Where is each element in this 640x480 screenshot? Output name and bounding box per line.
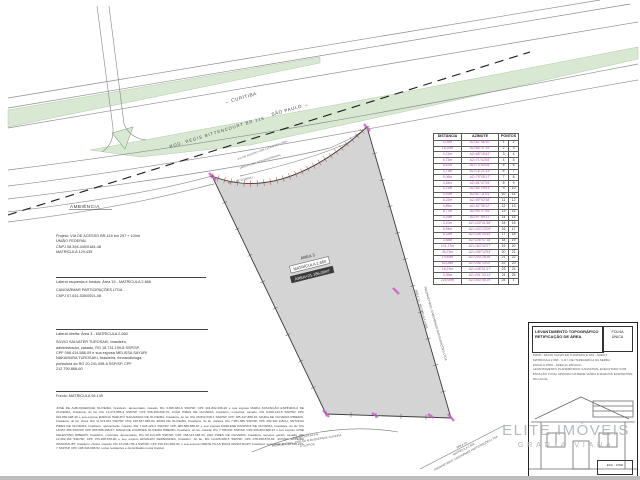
back-title: Fundo: MATRÍCULA 94.149 <box>56 394 208 399</box>
house-roof <box>535 397 629 419</box>
curitiba-label: ← CURITIBA <box>224 91 258 105</box>
divider-line <box>56 391 208 392</box>
watermark-name: ELITE IMÓVEIS <box>492 422 640 439</box>
watermark-location: GRANJA VIANA <box>492 440 640 449</box>
owners-paragraph: JOSÉ DE ALBUQUERQUE OLIVEIRA, brasileiro… <box>56 406 304 451</box>
divider-line <box>56 277 206 278</box>
back-boundary-note: Fundo: MATRÍCULA 94.149 <box>56 391 208 399</box>
survey-cell: 228,69m <box>434 278 462 284</box>
title-block: LEVANTAMENTO TOPOGRÁFICO RETIFICAÇÃO DE … <box>528 322 638 479</box>
br-label-3: PROPRIETÁRIO: CANOARMAR PARTICIPAÇÕES LT… <box>433 434 499 472</box>
text-line: LEVANTAMENTO PLANIMÉTRICO CADASTRAL EXEC… <box>533 367 633 381</box>
survey-sheet: ← CURITIBA SÃO PAULO → ROD. RÉGIS BITTEN… <box>0 0 640 480</box>
ambiencia-label: AMBIÊNCIA <box>70 202 100 209</box>
divider-line <box>56 329 208 330</box>
scale-box: ESC.: 1/500 <box>597 460 633 475</box>
sheet-number-box: FOLHA ÚNICA <box>602 326 633 352</box>
survey-row: 228,69mAZ=343°55'29"251 <box>434 278 519 284</box>
left-side-note: Lateral esquerda e fundos: Área 19 - MAT… <box>56 277 206 299</box>
right-side-lines: SILVIO SALVATER TUROSAKI, brasileiro,adm… <box>56 340 208 372</box>
title-block-heading: LEVANTAMENTO TOPOGRÁFICO RETIFICAÇÃO DE … <box>532 326 604 353</box>
text-line: 212.790.868-60 <box>56 367 208 372</box>
bottom-right-neighbour-labels: ÁREA 19 MATRÍCULA 2.666 PROPRIETÁRIO: CA… <box>429 426 499 471</box>
col-distancia: DISTÂNCIA <box>434 134 462 141</box>
left-side-lines: CANOARMAR PARTICIPAÇÕES LTDACNPJ 07.631.… <box>56 288 206 299</box>
agency-watermark: ELITE IMÓVEIS GRANJA VIANA <box>492 422 640 449</box>
col-pontos: PONTOS <box>499 134 519 141</box>
survey-cell: 1 <box>509 278 519 284</box>
col-azimute: AZIMUTE <box>462 134 499 141</box>
spec-box <box>593 401 633 417</box>
right-side-note: Lateral direita: Área 3 - MATRÍCULA 2.66… <box>56 329 208 372</box>
survey-cell: AZ=343°55'29" <box>462 278 499 284</box>
scan-page-edge <box>0 476 640 480</box>
text-line: CNPJ 07.631.535/0001-08 <box>56 294 206 299</box>
title-line-2: RETIFICAÇÃO DE ÁREA <box>535 334 601 339</box>
project-note: Projeto: VIA DE ACESSO BR-116 km 297 + 1… <box>56 234 216 255</box>
survey-table-body: 4,05mAZ=62°58'10"1216,39mAZ=65°37'15"234… <box>434 140 519 284</box>
survey-table: DISTÂNCIA AZIMUTE PONTOS 4,05mAZ=62°58'1… <box>433 133 519 285</box>
survey-cell: 25 <box>499 278 509 284</box>
title-block-notes: PROP.: SILVIO SALVATER TUROSAKI E S/M - … <box>533 353 633 382</box>
sheet-value: ÚNICA <box>603 335 632 340</box>
text-line: MATRÍCULA 129.439 <box>56 250 216 255</box>
survey-table-header: DISTÂNCIA AZIMUTE PONTOS <box>434 134 519 141</box>
